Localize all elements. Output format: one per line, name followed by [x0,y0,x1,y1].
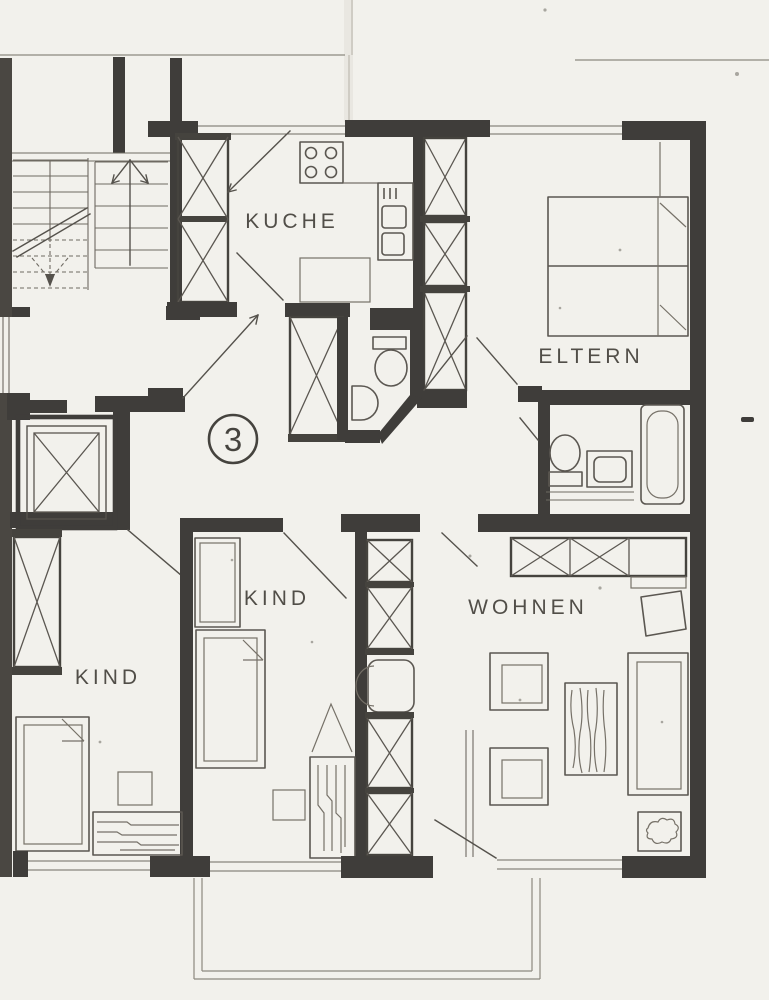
stairs-upper-flight [88,158,168,290]
wc-chamfer-wall [378,395,422,444]
armchair-2 [490,748,548,805]
entry-hall: 3 [148,315,258,463]
bathtub [641,405,684,504]
corridor-cabinet [368,660,414,712]
stove [300,142,378,183]
exterior-wall-left [0,58,12,877]
double-bed [548,142,688,336]
kitchen-table [300,258,370,302]
table-child-left [118,772,152,805]
stairs-lower-flight [13,160,90,288]
corridor-closets [356,540,473,857]
wc-sink [352,386,378,420]
unit-number: 3 [224,421,242,458]
child-left-label: KIND [75,666,141,689]
north-wall [148,120,706,878]
kitchen-door-swing [228,131,290,192]
sofa [628,653,688,795]
sideboard [511,538,686,576]
parents-door-swing [477,338,517,384]
bath-toilet [549,435,582,486]
elevator-lobby [7,393,185,576]
door-swing-child-left [128,530,182,576]
wc [288,317,424,444]
floorplan-drawing: 3 [0,0,769,1000]
shaft-child-left [12,529,62,675]
kitchen: KUCHE [167,131,424,330]
wardrobe-child-middle [195,538,240,627]
floorplan-page: 3 [0,0,769,1000]
kitchen-door-swing-2 [237,253,283,300]
plant [638,812,681,851]
balcony [194,878,540,979]
kitchen-label: KUCHE [245,210,339,233]
parents-room: ELTERN [424,142,688,402]
unit-number-badge: 3 [209,415,257,463]
desk-child-middle [273,704,355,858]
living-door-swing [442,533,477,566]
shelf [631,577,686,588]
shaft-kitchen-left [175,133,231,302]
middle-walls [180,514,706,877]
bed-child-middle [196,630,265,768]
kitchen-counter [300,183,413,302]
scan-artifacts [99,0,754,743]
elevator [18,417,115,528]
bed-child-left [16,717,89,851]
coffee-table [565,683,617,775]
bathroom [520,390,706,515]
stairwell [12,57,200,320]
entry-door-swing [183,315,258,398]
bath-door-swing [520,418,538,440]
radiator-desk-left [93,812,182,855]
shaft-column-center [417,138,470,408]
living-label: WOHNEN [468,596,588,619]
living-room: WOHNEN [435,538,706,878]
side-table [641,591,686,636]
child-middle-label: KIND [244,587,310,610]
parents-label: ELTERN [538,345,643,368]
hall-door-swing [424,336,467,390]
wc-toilet [373,337,407,386]
armchair-1 [490,653,548,710]
bath-sink [587,451,632,487]
